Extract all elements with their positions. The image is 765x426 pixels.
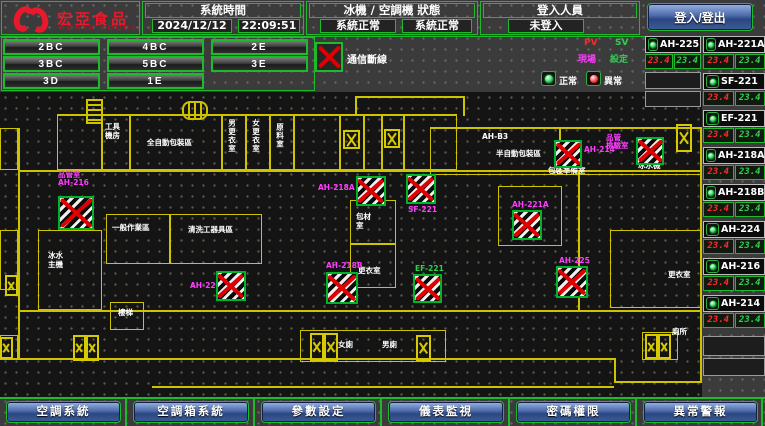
- status-led-icon: [649, 41, 657, 49]
- equip-values: 23.4 23.4: [703, 91, 765, 106]
- led-box: [706, 75, 719, 88]
- floor-button-3e[interactable]: 3E: [211, 56, 308, 72]
- floor-button-5bc[interactable]: 5BC: [107, 56, 204, 72]
- equip-name: EF-221: [721, 113, 757, 124]
- room-label: 女廁: [338, 341, 353, 350]
- equip-name: AH-214: [721, 298, 760, 309]
- device-label: SF-221: [408, 206, 437, 214]
- empty-slot: [645, 91, 701, 107]
- room-label: 廁所: [672, 328, 687, 337]
- pv-value: 23.4: [703, 276, 734, 291]
- shaft-x-icon: [324, 333, 338, 361]
- shaft-x-icon: [658, 334, 671, 359]
- room-outline: [106, 214, 170, 264]
- nav-button-password[interactable]: 密碼權限: [517, 402, 630, 422]
- site-header-label: 現場: [578, 52, 596, 65]
- equip-row-ah221a[interactable]: AH-221A: [703, 36, 765, 53]
- empty-slot: [703, 336, 765, 356]
- status-led-icon: [709, 78, 717, 86]
- room-outline: [294, 114, 340, 170]
- nav-button-ac-system[interactable]: 空調系統: [7, 402, 120, 422]
- room-label: 冰水主機: [48, 252, 65, 269]
- hmi-screen: 宏亞食品 HUNYA FOODS 系統時間 2024/12/12 22:09:5…: [0, 0, 765, 426]
- room-outline: [610, 230, 702, 308]
- room-outline: [38, 230, 102, 310]
- ahu-device-icon[interactable]: [326, 272, 358, 304]
- machine-status-label: 冰機 / 空調機 狀態: [309, 3, 475, 18]
- floor-button-3bc[interactable]: 3BC: [3, 56, 100, 72]
- room-label: 工具機房: [105, 123, 122, 140]
- legend-normal-label: 正常: [559, 74, 577, 87]
- set-header-label: 設定: [610, 52, 628, 65]
- empty-slot: [703, 358, 765, 376]
- led-box: [706, 297, 719, 310]
- status-led-icon: [707, 41, 715, 49]
- sv-value: 23.4: [735, 239, 765, 254]
- room-label: 女更衣室: [251, 119, 260, 153]
- sv-value: 23.4: [674, 54, 702, 69]
- abnormal-led-icon: [589, 74, 599, 84]
- room-label: 樓梯: [118, 309, 133, 318]
- device-label: AH-218B: [326, 262, 363, 270]
- equip-name: AH-225: [660, 39, 699, 50]
- equip-row-sf221[interactable]: SF-221: [703, 73, 765, 90]
- wall-segment: [614, 358, 616, 383]
- wall-segment: [614, 381, 702, 383]
- shaft-x-icon: [0, 337, 13, 359]
- shaft-x-icon: [416, 335, 431, 361]
- room-outline: [0, 128, 18, 170]
- equip-row-ah214[interactable]: AH-214: [703, 295, 765, 312]
- chiller-status-value: 系統正常: [320, 19, 396, 33]
- status-led-icon: [709, 300, 717, 308]
- sv-value: 23.4: [735, 276, 765, 291]
- equip-row-ah218b[interactable]: AH-218B: [703, 184, 765, 201]
- nav-button-alarms[interactable]: 異常警報: [644, 402, 757, 422]
- pv-value: 23.4: [645, 54, 673, 69]
- shaft-x-icon: [5, 275, 18, 296]
- floor-button-3d[interactable]: 3D: [3, 73, 100, 89]
- equip-name: AH-224: [721, 224, 760, 235]
- room-label: AH-B3: [482, 133, 508, 142]
- wall-segment: [355, 96, 465, 98]
- device-label: 品管室AH-216: [58, 171, 89, 187]
- shaft-x-icon: [384, 129, 400, 148]
- equip-values: 23.4 23.4: [645, 54, 701, 69]
- equip-row-ah216[interactable]: AH-216: [703, 258, 765, 275]
- wall-segment: [152, 386, 614, 388]
- wall-segment: [18, 128, 20, 360]
- device-label: EF-221: [415, 265, 444, 273]
- equip-row-ah224[interactable]: AH-224: [703, 221, 765, 238]
- status-led-icon: [709, 115, 717, 123]
- machine-icon: [182, 101, 208, 120]
- sv-header-label: SV: [615, 38, 628, 48]
- login-label: 登入人員: [483, 3, 637, 18]
- floor-button-2e[interactable]: 2E: [211, 39, 308, 55]
- login-user-value: 未登入: [508, 19, 584, 33]
- ahu-device-icon[interactable]: [554, 140, 582, 168]
- equip-row-ah218a[interactable]: AH-218A: [703, 147, 765, 164]
- logo-section: 宏亞食品 HUNYA FOODS: [1, 1, 140, 35]
- led-box: [706, 260, 719, 273]
- shaft-x-icon: [310, 333, 324, 361]
- room-label: 一般作業區: [112, 224, 150, 233]
- room-outline: [170, 214, 262, 264]
- room-label: 更衣室: [668, 271, 691, 280]
- wall-segment: [355, 96, 357, 116]
- system-date-value: 2024/12/12: [152, 19, 232, 33]
- device-label: AH-225: [559, 257, 590, 265]
- led-box: [706, 186, 716, 199]
- pv-value: 23.4: [703, 54, 734, 69]
- led-box: [706, 149, 716, 162]
- led-box: [706, 38, 716, 51]
- equip-values: 23.4 23.4: [703, 239, 765, 254]
- led-box: [706, 112, 719, 125]
- system-time-value: 22:09:51: [238, 19, 300, 33]
- login-logout-button[interactable]: 登入/登出: [648, 4, 752, 30]
- room-label: 全自動包裝區: [147, 139, 192, 148]
- led-box: [648, 38, 658, 51]
- sv-value: 23.4: [735, 128, 765, 143]
- sv-value: 23.4: [735, 54, 765, 69]
- sv-value: 23.4: [735, 313, 765, 328]
- room-label: 清洗工器具區: [188, 226, 233, 235]
- nav-button-meters[interactable]: 儀表監視: [389, 402, 503, 422]
- normal-led-icon: [544, 74, 554, 84]
- shaft-x-icon: [73, 335, 86, 361]
- pv-value: 23.4: [703, 313, 734, 328]
- equip-name: AH-218A: [718, 150, 764, 161]
- shaft-x-icon: [645, 334, 658, 359]
- floor-button-4bc[interactable]: 4BC: [107, 39, 204, 55]
- pv-header-label: PV: [584, 38, 598, 48]
- ahu-device-icon[interactable]: [512, 210, 542, 240]
- equip-values: 23.4 23.4: [703, 54, 765, 69]
- nav-button-parameters[interactable]: 參數設定: [262, 402, 375, 422]
- equip-name: AH-221A: [718, 39, 764, 50]
- fan-device-icon[interactable]: [413, 274, 442, 303]
- ahu-device-icon[interactable]: [556, 266, 588, 298]
- device-label: AH-218A: [318, 184, 355, 192]
- led-box: [706, 223, 719, 236]
- equip-values: 23.4 23.4: [703, 128, 765, 143]
- device-label: 品管檢驗室: [606, 134, 629, 150]
- room-label: 男更衣室: [227, 119, 236, 153]
- room-label: 男廁: [382, 341, 397, 350]
- legend-abnormal-label: 異常: [604, 74, 622, 87]
- sv-value: 23.4: [735, 165, 765, 180]
- ahu-device-icon[interactable]: [636, 137, 664, 165]
- equip-name: SF-221: [721, 76, 758, 87]
- legend-abnormal-led-box: [586, 71, 601, 86]
- empty-slot: [645, 72, 701, 89]
- device-label: AH-221A: [512, 201, 549, 209]
- nav-button-ahu-system[interactable]: 空調箱系統: [134, 402, 248, 422]
- ac-status-value: 系統正常: [402, 19, 472, 33]
- equip-values: 23.4 23.4: [703, 202, 765, 217]
- floor-button-1e[interactable]: 1E: [107, 73, 204, 89]
- room-label: 原料室: [275, 123, 284, 149]
- comm-offline-icon: [315, 42, 343, 72]
- room-label: 包材室: [356, 213, 373, 230]
- ahu-device-icon[interactable]: [216, 271, 246, 301]
- room-label: 包裝準備室: [548, 167, 586, 176]
- ahu-device-icon[interactable]: [356, 176, 386, 206]
- room-outline: [364, 114, 382, 170]
- pv-value: 23.4: [703, 239, 734, 254]
- sv-value: 23.4: [735, 202, 765, 217]
- status-led-icon: [709, 263, 717, 271]
- comm-offline-label: 通信斷線: [347, 51, 387, 66]
- status-led-icon: [709, 226, 717, 234]
- floor-button-2bc[interactable]: 2BC: [3, 39, 100, 55]
- wall-segment: [463, 96, 465, 116]
- stairs-icon: [86, 99, 103, 124]
- legend-normal-led-box: [541, 71, 556, 86]
- sv-value: 23.4: [735, 91, 765, 106]
- room-label: 半自動包裝區: [496, 150, 541, 159]
- shaft-x-icon: [676, 124, 692, 152]
- equip-values: 23.4 23.4: [703, 276, 765, 291]
- status-led-icon: [707, 152, 715, 160]
- equip-row-ah225[interactable]: AH-225: [645, 36, 701, 53]
- status-led-icon: [707, 189, 715, 197]
- equip-row-ef221[interactable]: EF-221: [703, 110, 765, 127]
- shaft-x-icon: [86, 335, 99, 361]
- equip-name: AH-218B: [718, 187, 764, 198]
- shaft-x-icon: [343, 130, 360, 149]
- pv-value: 23.4: [703, 165, 734, 180]
- equip-values: 23.4 23.4: [703, 165, 765, 180]
- equip-values: 23.4 23.4: [703, 313, 765, 328]
- brand-name-en: HUNYA FOODS: [59, 24, 138, 32]
- pv-value: 23.4: [703, 128, 734, 143]
- pv-value: 23.4: [703, 91, 734, 106]
- ahu-device-icon[interactable]: [58, 196, 94, 230]
- pv-value: 23.4: [703, 202, 734, 217]
- equip-name: AH-216: [721, 261, 760, 272]
- fan-device-icon[interactable]: [406, 174, 436, 204]
- system-time-label: 系統時間: [145, 3, 301, 18]
